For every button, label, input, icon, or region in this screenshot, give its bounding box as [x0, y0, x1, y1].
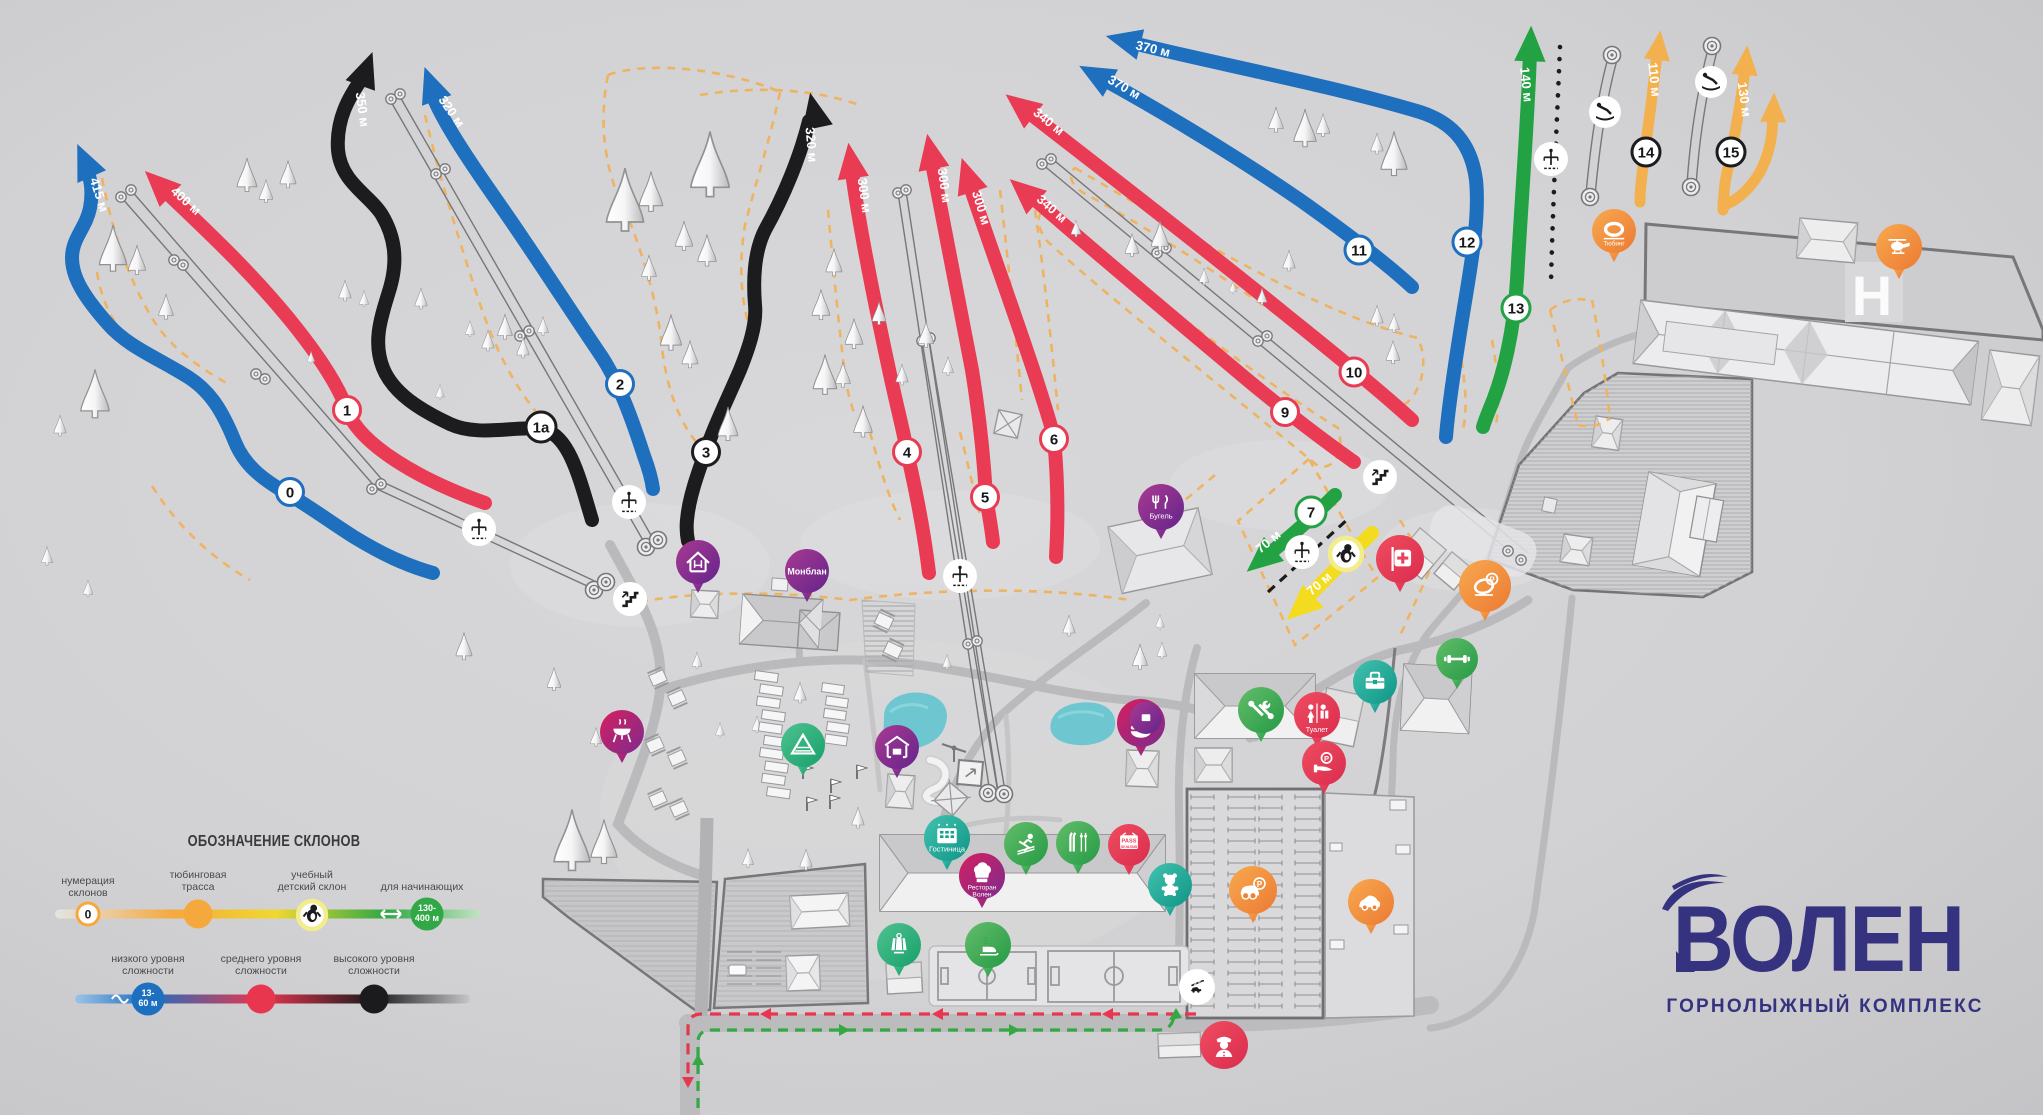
svg-text:Тюбинг: Тюбинг: [1603, 239, 1625, 247]
svg-text:детский склон: детский склон: [278, 881, 347, 893]
svg-text:Монблан: Монблан: [787, 566, 826, 576]
svg-text:1а: 1а: [533, 419, 550, 436]
svg-text:Р: Р: [1257, 879, 1263, 889]
svg-text:Туалет: Туалет: [1306, 726, 1329, 734]
svg-text:нумерация: нумерация: [61, 875, 114, 887]
svg-text:ГОРНОЛЫЖНЫЙ КОМПЛЕКС: ГОРНОЛЫЖНЫЙ КОМПЛЕКС: [1666, 995, 1983, 1017]
svg-text:Ресторан: Ресторан: [968, 884, 997, 891]
svg-text:низкого уровня: низкого уровня: [111, 953, 184, 965]
svg-text:ОБОЗНАЧЕНИЕ СКЛОНОВ: ОБОЗНАЧЕНИЕ СКЛОНОВ: [188, 833, 361, 850]
svg-text:320 м: 320 м: [802, 127, 820, 163]
svg-text:0: 0: [286, 484, 294, 501]
svg-text:сложности: сложности: [235, 965, 287, 977]
svg-text:Р: Р: [1324, 754, 1329, 763]
svg-text:учебный: учебный: [291, 869, 333, 881]
svg-text:4: 4: [903, 444, 912, 461]
svg-text:13-: 13-: [141, 988, 154, 998]
svg-text:Бугель: Бугель: [1149, 512, 1172, 521]
svg-text:среднего уровня: среднего уровня: [221, 953, 302, 965]
svg-text:H: H: [1852, 264, 1892, 327]
svg-text:14: 14: [1638, 144, 1655, 161]
svg-text:12: 12: [1459, 234, 1476, 251]
svg-text:9: 9: [1281, 404, 1289, 421]
svg-text:11: 11: [1351, 242, 1367, 259]
svg-text:Волен: Волен: [972, 891, 992, 898]
svg-text:15: 15: [1723, 144, 1740, 161]
svg-text:трасса: трасса: [182, 881, 215, 893]
svg-text:400 м: 400 м: [415, 913, 440, 923]
svg-text:сложности: сложности: [122, 965, 174, 977]
svg-text:7: 7: [1307, 504, 1315, 521]
svg-text:13: 13: [1508, 300, 1525, 317]
svg-text:10: 10: [1346, 364, 1363, 381]
svg-text:тюбинговая: тюбинговая: [170, 869, 227, 881]
svg-text:5: 5: [981, 489, 989, 506]
svg-text:Гостиница: Гостиница: [929, 844, 966, 853]
svg-text:60 м: 60 м: [138, 998, 158, 1008]
svg-text:2: 2: [616, 376, 624, 393]
svg-text:SKI&SNB: SKI&SNB: [1121, 845, 1138, 849]
svg-text:для начинающих: для начинающих: [381, 881, 465, 893]
svg-text:склонов: склонов: [68, 887, 108, 899]
svg-text:высокого уровня: высокого уровня: [333, 953, 414, 965]
svg-text:6: 6: [1050, 431, 1058, 448]
svg-text:Р: Р: [1489, 576, 1495, 585]
svg-text:1: 1: [343, 402, 351, 419]
svg-text:130-: 130-: [418, 903, 436, 913]
svg-text:0: 0: [85, 908, 92, 922]
svg-text:сложности: сложности: [348, 965, 400, 977]
svg-text:ВОЛЕН: ВОЛЕН: [1673, 886, 1964, 991]
svg-text:PASS: PASS: [1122, 839, 1137, 845]
svg-text:3: 3: [702, 444, 710, 461]
